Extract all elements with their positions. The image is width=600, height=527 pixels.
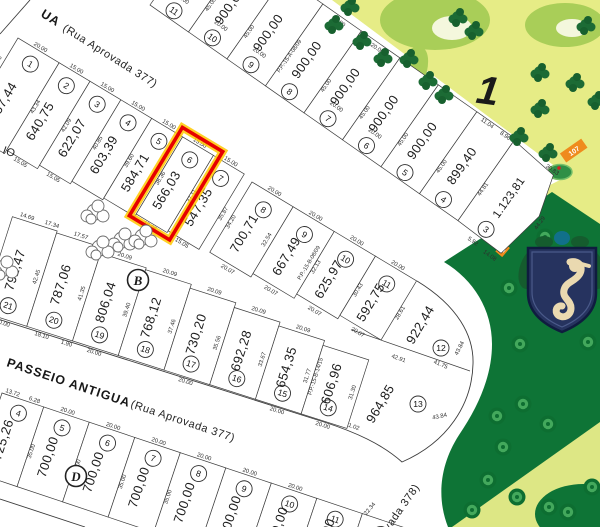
ring-tree-icon (560, 504, 577, 521)
crest-leaf (571, 236, 589, 248)
svg-text:12: 12 (436, 343, 446, 353)
plat-map-svg: 1 107 2 1 2 3 4 5 6 7 857,44 (0, 0, 600, 527)
ring-tree-icon (540, 416, 557, 433)
ring-tree-icon (541, 499, 558, 516)
ring-tree-icon (515, 396, 532, 413)
ring-tree-icon (509, 489, 526, 506)
ring-tree-icon (501, 280, 518, 297)
crest-leaf (535, 236, 553, 248)
crest-crown (554, 231, 570, 245)
block-b-letter: B (133, 273, 143, 288)
ring-tree-icon (489, 408, 506, 425)
ring-tree-icon (512, 336, 529, 353)
block-d-letter: D (70, 469, 81, 484)
plat-map-screenshot: 1 107 2 1 2 3 4 5 6 7 857,44 (0, 0, 600, 527)
ring-tree-icon (464, 502, 481, 519)
ring-tree-icon (495, 439, 512, 456)
ring-tree-icon (480, 472, 497, 489)
svg-text:13: 13 (413, 399, 423, 409)
flag-icon (557, 166, 561, 170)
ring-tree-icon (580, 334, 597, 351)
ring-tree-icon (584, 479, 600, 496)
